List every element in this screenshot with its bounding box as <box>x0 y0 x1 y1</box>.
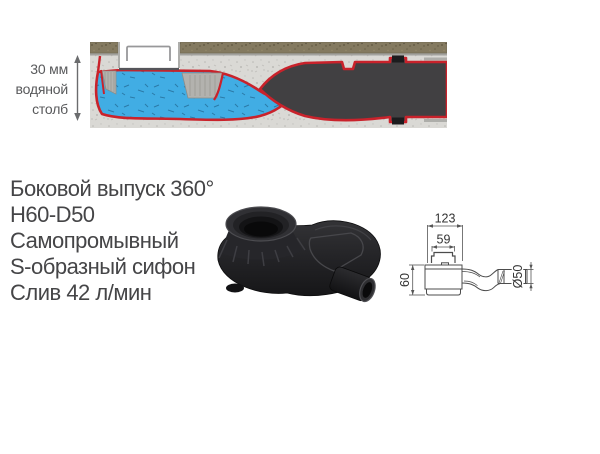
tile-layer-left <box>90 42 118 53</box>
water-column-label-line2: водяной <box>4 79 68 99</box>
installation-cross-section-illustration <box>90 42 447 128</box>
water-column-label-line3: столб <box>4 99 68 119</box>
feature-line-model: H60-D50 <box>10 202 250 228</box>
dim-height-label: 60 <box>400 273 412 287</box>
dim-width-total-label: 123 <box>435 212 456 226</box>
insert-bracket <box>432 253 456 264</box>
tile-layer-right <box>180 42 447 53</box>
dim-diameter-label: Ø50 <box>511 265 525 289</box>
dim-width-inner-label: 59 <box>437 233 451 247</box>
water-column-arrow <box>71 54 84 122</box>
feature-line-selfcleaning: Самопромывный <box>10 228 250 254</box>
siphon-product-render <box>215 200 390 307</box>
feature-line-outlet: Боковой выпуск 360° <box>10 176 250 202</box>
product-info-page: 30 мм водяной столб Боковой выпуск 360° … <box>0 0 600 454</box>
channel-foot-left <box>101 70 116 94</box>
dimension-drawing: 123 59 60 Ø50 <box>400 205 535 305</box>
feature-line-strap: S-образный сифон <box>10 254 250 280</box>
feature-line-flowrate: Слив 42 л/мин <box>10 280 250 306</box>
water-column-label: 30 мм водяной столб <box>4 59 68 119</box>
channel-foot-right <box>182 73 223 100</box>
feature-list: Боковой выпуск 360° H60-D50 Самопромывны… <box>10 176 250 306</box>
water-column-label-line1: 30 мм <box>4 59 68 79</box>
